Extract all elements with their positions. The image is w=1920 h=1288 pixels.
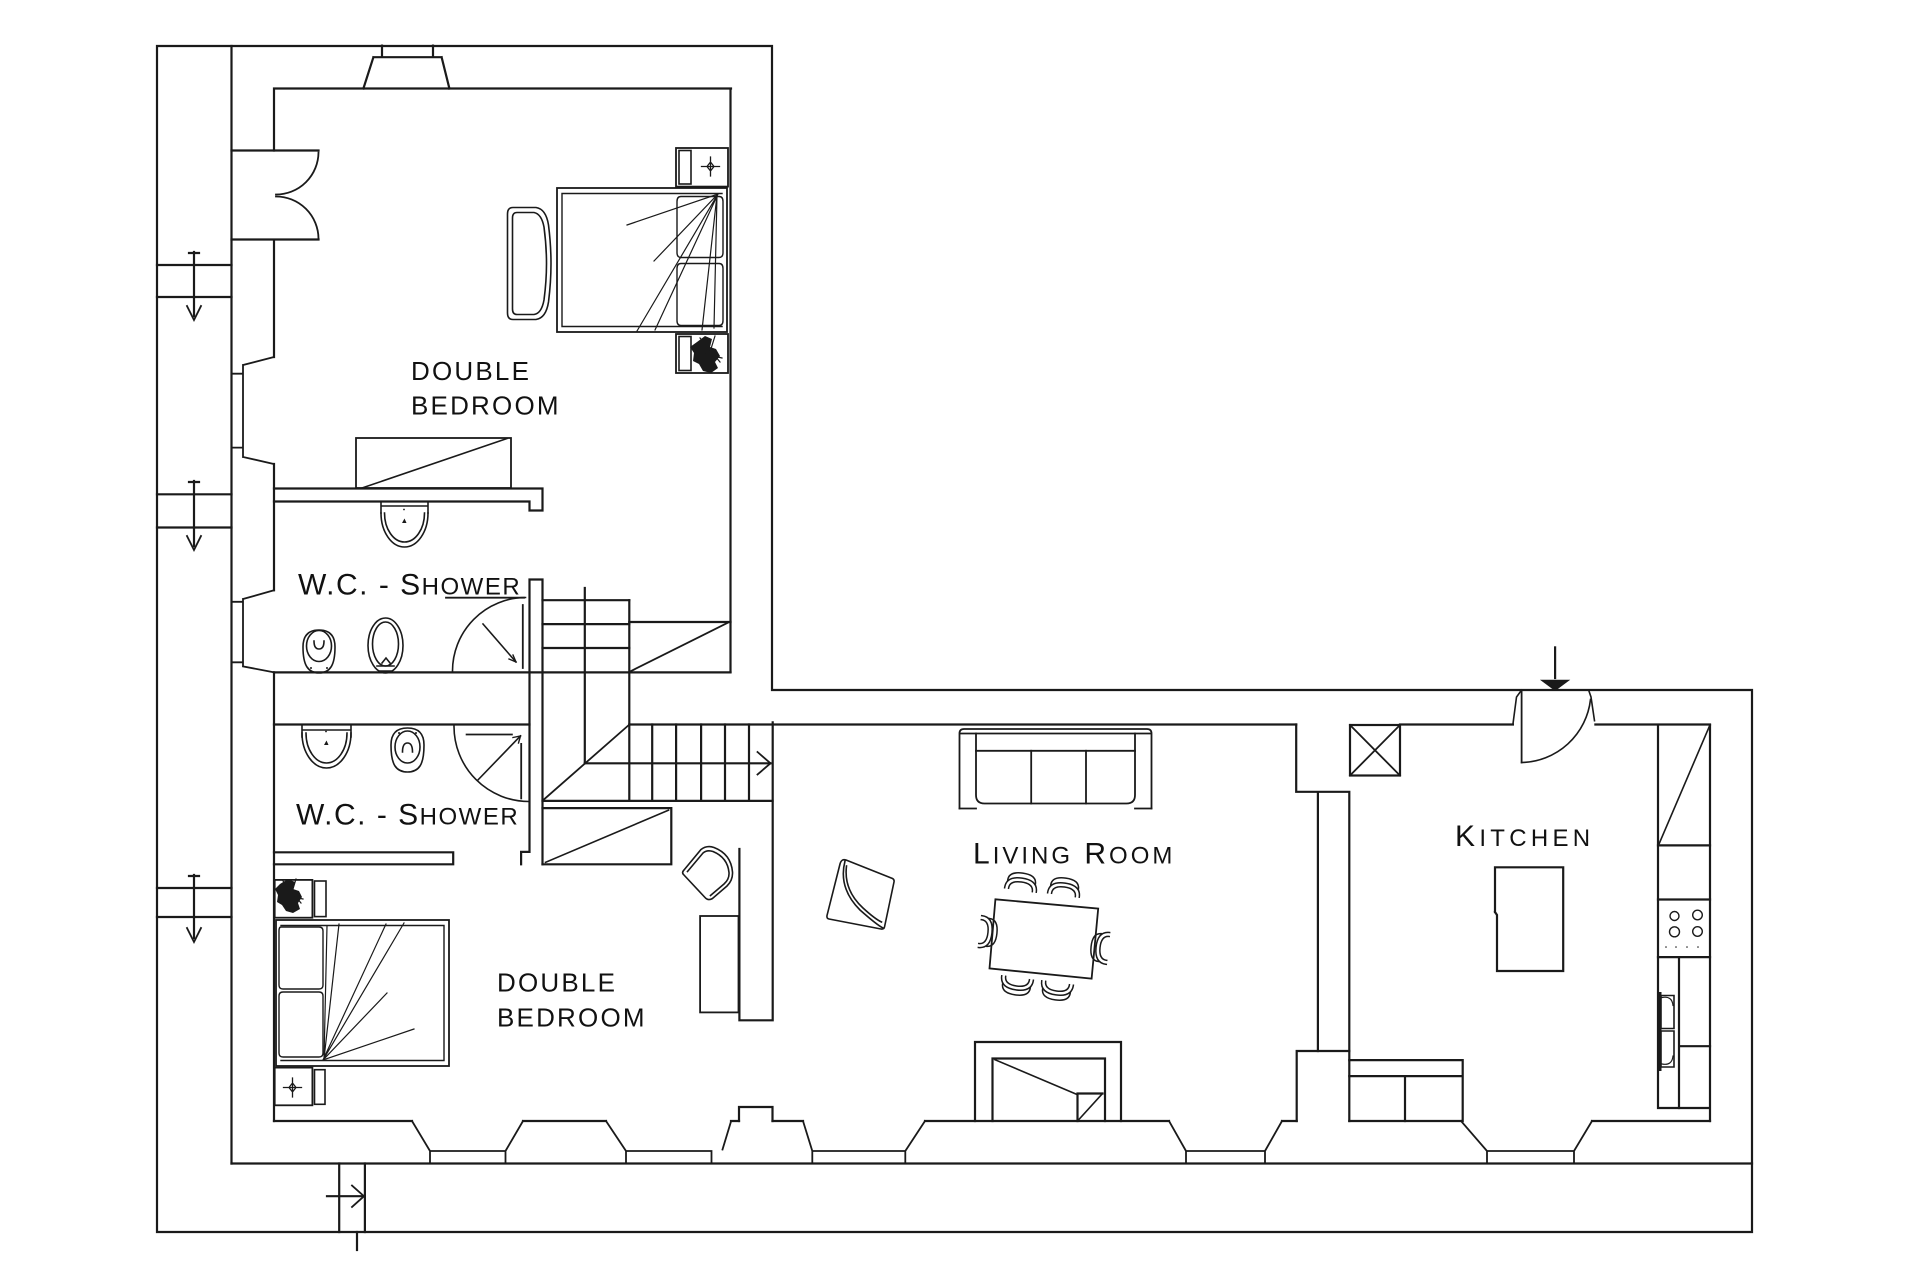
svg-text:W.C. - SHOWER: W.C. - SHOWER [298, 569, 521, 602]
svg-text:BEDROOM: BEDROOM [497, 1003, 647, 1033]
svg-text:BEDROOM: BEDROOM [411, 391, 561, 421]
svg-text:W.C. - SHOWER: W.C. - SHOWER [296, 799, 519, 832]
svg-text:LIVING ROOM: LIVING ROOM [973, 838, 1175, 871]
svg-text:DOUBLE: DOUBLE [411, 356, 531, 386]
svg-text:KITCHEN: KITCHEN [1455, 820, 1594, 853]
svg-text:DOUBLE: DOUBLE [497, 968, 617, 998]
